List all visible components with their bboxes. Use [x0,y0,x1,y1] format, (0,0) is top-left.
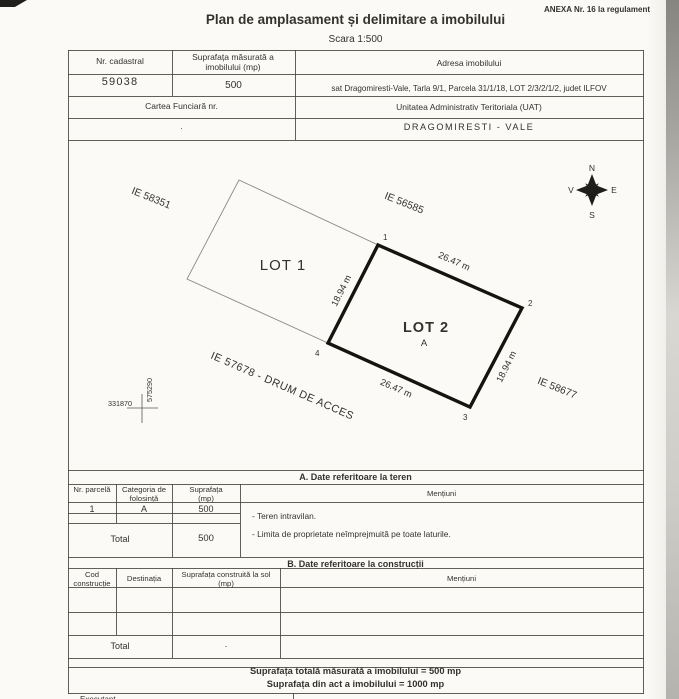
divider-line [68,50,644,51]
nr-cadastral-value: 59038 [68,76,172,88]
divider-line [68,557,644,558]
divider-line [116,568,117,635]
col-header-categoria: Categoria de folosință [118,486,170,503]
compass-west-label: V [568,185,574,195]
lot2-category-label: A [421,338,428,349]
divider-line [68,693,644,694]
divider-line [68,470,644,471]
neighbor-parcel-se: IE 58677 [536,376,579,402]
cartea-funciara-value: . [68,121,295,131]
total-measured-area: Suprafața totală măsurată a imobilului =… [68,666,643,676]
uat-label: Unitatea Administrativ Teritoriala (UAT) [295,102,643,112]
scale-label: Scara 1:500 [68,34,643,45]
corner-point-1: 1 [383,233,388,242]
page-title: Plan de amplasament și delimitare a imob… [68,12,643,27]
divider-line [293,693,294,699]
compass-south-label: S [589,210,595,220]
section-b-total-label: Total [68,641,172,651]
uat-value: DRAGOMIRESTI - VALE [295,122,643,132]
section-a-total-value: 500 [172,533,240,544]
col-header-cod-constructie: Cod construcție [70,571,114,588]
col-header-mentiuni-b: Mențiuni [280,575,643,584]
grid-y-value: 575290 [145,378,154,402]
compass-rose-icon: N S E V [568,163,617,220]
adresa-value: sat Dragomiresti-Vale, Tarla 9/1, Parcel… [297,84,641,93]
table-border-right [643,50,644,694]
suprafata-masurata-label: Suprafața măsurată a imobilului (mp) [177,52,289,72]
col-header-mentiuni-a: Mențiuni [240,490,643,499]
adresa-label: Adresa imobilului [295,58,643,68]
mentiuni-line-1: - Teren intravilan. [252,511,632,521]
section-a-total-label: Total [68,534,172,544]
access-road-label: IE 57678 - DRUM DE ACCES [209,350,356,423]
corner-point-4: 4 [315,349,320,358]
col-header-suprafata: Suprafața (mp) [181,486,231,503]
divider-line [68,118,644,119]
dimension-top: 26.47 m [437,250,472,273]
section-b-total-value: . [172,639,280,649]
divider-line [68,612,644,613]
site-plan-drawing: 1 2 3 4 26.47 m 18.94 m 26.47 m 18.94 m … [68,140,643,470]
corner-point-3: 3 [463,413,468,422]
corner-point-2: 2 [528,299,533,308]
divider-line [68,74,644,75]
compass-north-label: N [589,163,595,173]
divider-line [68,96,644,97]
lot2-label: LOT 2 [403,320,449,336]
mentiuni-line-2: - Limita de proprietate neîmprejmuită pe… [252,529,632,539]
divider-line [68,523,240,524]
divider-line [68,635,644,636]
col-header-suprafata-construita: Suprafața construită la sol (mp) [176,571,276,588]
executant-label-clipped: Executant, [80,695,200,699]
col-header-destinatia: Destinația [118,575,170,584]
divider-line [172,484,173,557]
parcel-row-category: A [116,504,172,514]
neighbor-parcel-ne: IE 56585 [383,191,426,217]
col-header-nr-parcela: Nr. parcelă [70,486,114,495]
divider-line [68,658,644,659]
parcel-row-number: 1 [68,504,116,514]
divider-line [68,587,644,588]
parcel-row-area: 500 [172,504,240,514]
deed-area: Suprafața din act a imobilului = 1000 mp [68,679,643,689]
cartea-funciara-label: Cartea Funciară nr. [68,101,295,111]
scanned-cadastral-document: ANEXA Nr. 16 la regulament Plan de ampla… [0,0,679,699]
suprafata-masurata-value: 500 [172,80,295,91]
section-a-title: A. Date referitoare la teren [68,472,643,482]
lot1-label: LOT 1 [260,257,306,274]
scanner-background [666,0,679,699]
compass-east-label: E [611,185,617,195]
grid-x-value: 331870 [108,399,132,408]
neighbor-parcel-nw: IE 58351 [130,186,173,212]
section-b-title: B. Date referitoare la construcții [68,559,643,569]
nr-cadastral-label: Nr. cadastral [68,56,172,66]
